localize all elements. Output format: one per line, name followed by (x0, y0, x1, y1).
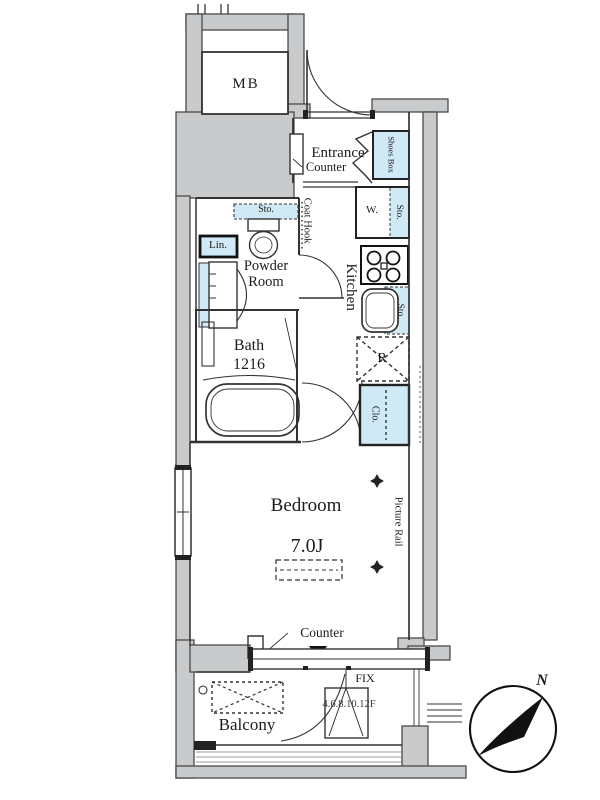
kitchen-label: Kitchen (343, 244, 359, 330)
compass (470, 686, 556, 772)
bath-label: Bath (189, 337, 309, 354)
bedroom-counter-label: Counter (262, 626, 382, 641)
bath-room (196, 310, 299, 442)
refrigerator-label: R (322, 351, 442, 366)
bedroom-window-left (175, 465, 191, 560)
balcony-sliding-door (248, 647, 430, 671)
powder-storage-label: Sto. (206, 205, 326, 216)
washer-storage-label: Sto. (394, 192, 404, 232)
powder-room-label: Powder Room (233, 259, 299, 290)
balcony-label: Balcony (187, 716, 307, 734)
shoes-box-label: Shoes Box (386, 132, 395, 178)
bedroom-size-label: 7.0J (247, 536, 367, 558)
entrance-counter-label: Counter (266, 161, 386, 175)
fix-label: FIX (305, 672, 425, 685)
sink-storage-label: Sto. (395, 291, 405, 331)
toilet (248, 219, 279, 259)
entrance-label: Entrance (278, 145, 398, 161)
floors-label: 4.6.8.10.12F (289, 699, 409, 710)
compass-north-label: N (482, 672, 600, 689)
closet-box (360, 385, 409, 445)
linen-label: Lin. (158, 240, 278, 252)
wall-ticks (198, 4, 228, 14)
coat-hook-label: Coat Hook (301, 188, 312, 254)
mb-label: MB (186, 76, 306, 92)
floor-plan: MB Entrance Counter Shoes Box Coat Hook … (0, 0, 600, 800)
picture-rail-label: Picture Rail (392, 483, 403, 561)
entrance-door (303, 50, 375, 119)
bedroom-label: Bedroom (246, 496, 366, 517)
closet-label: Clo. (369, 388, 380, 440)
bedroom-dashed-box (276, 560, 342, 580)
washer-label: W. (312, 205, 432, 217)
bath-size-label: 1216 (189, 356, 309, 373)
bedroom-door (190, 310, 362, 442)
stove (361, 246, 408, 284)
picture-rail-markers (370, 474, 384, 574)
